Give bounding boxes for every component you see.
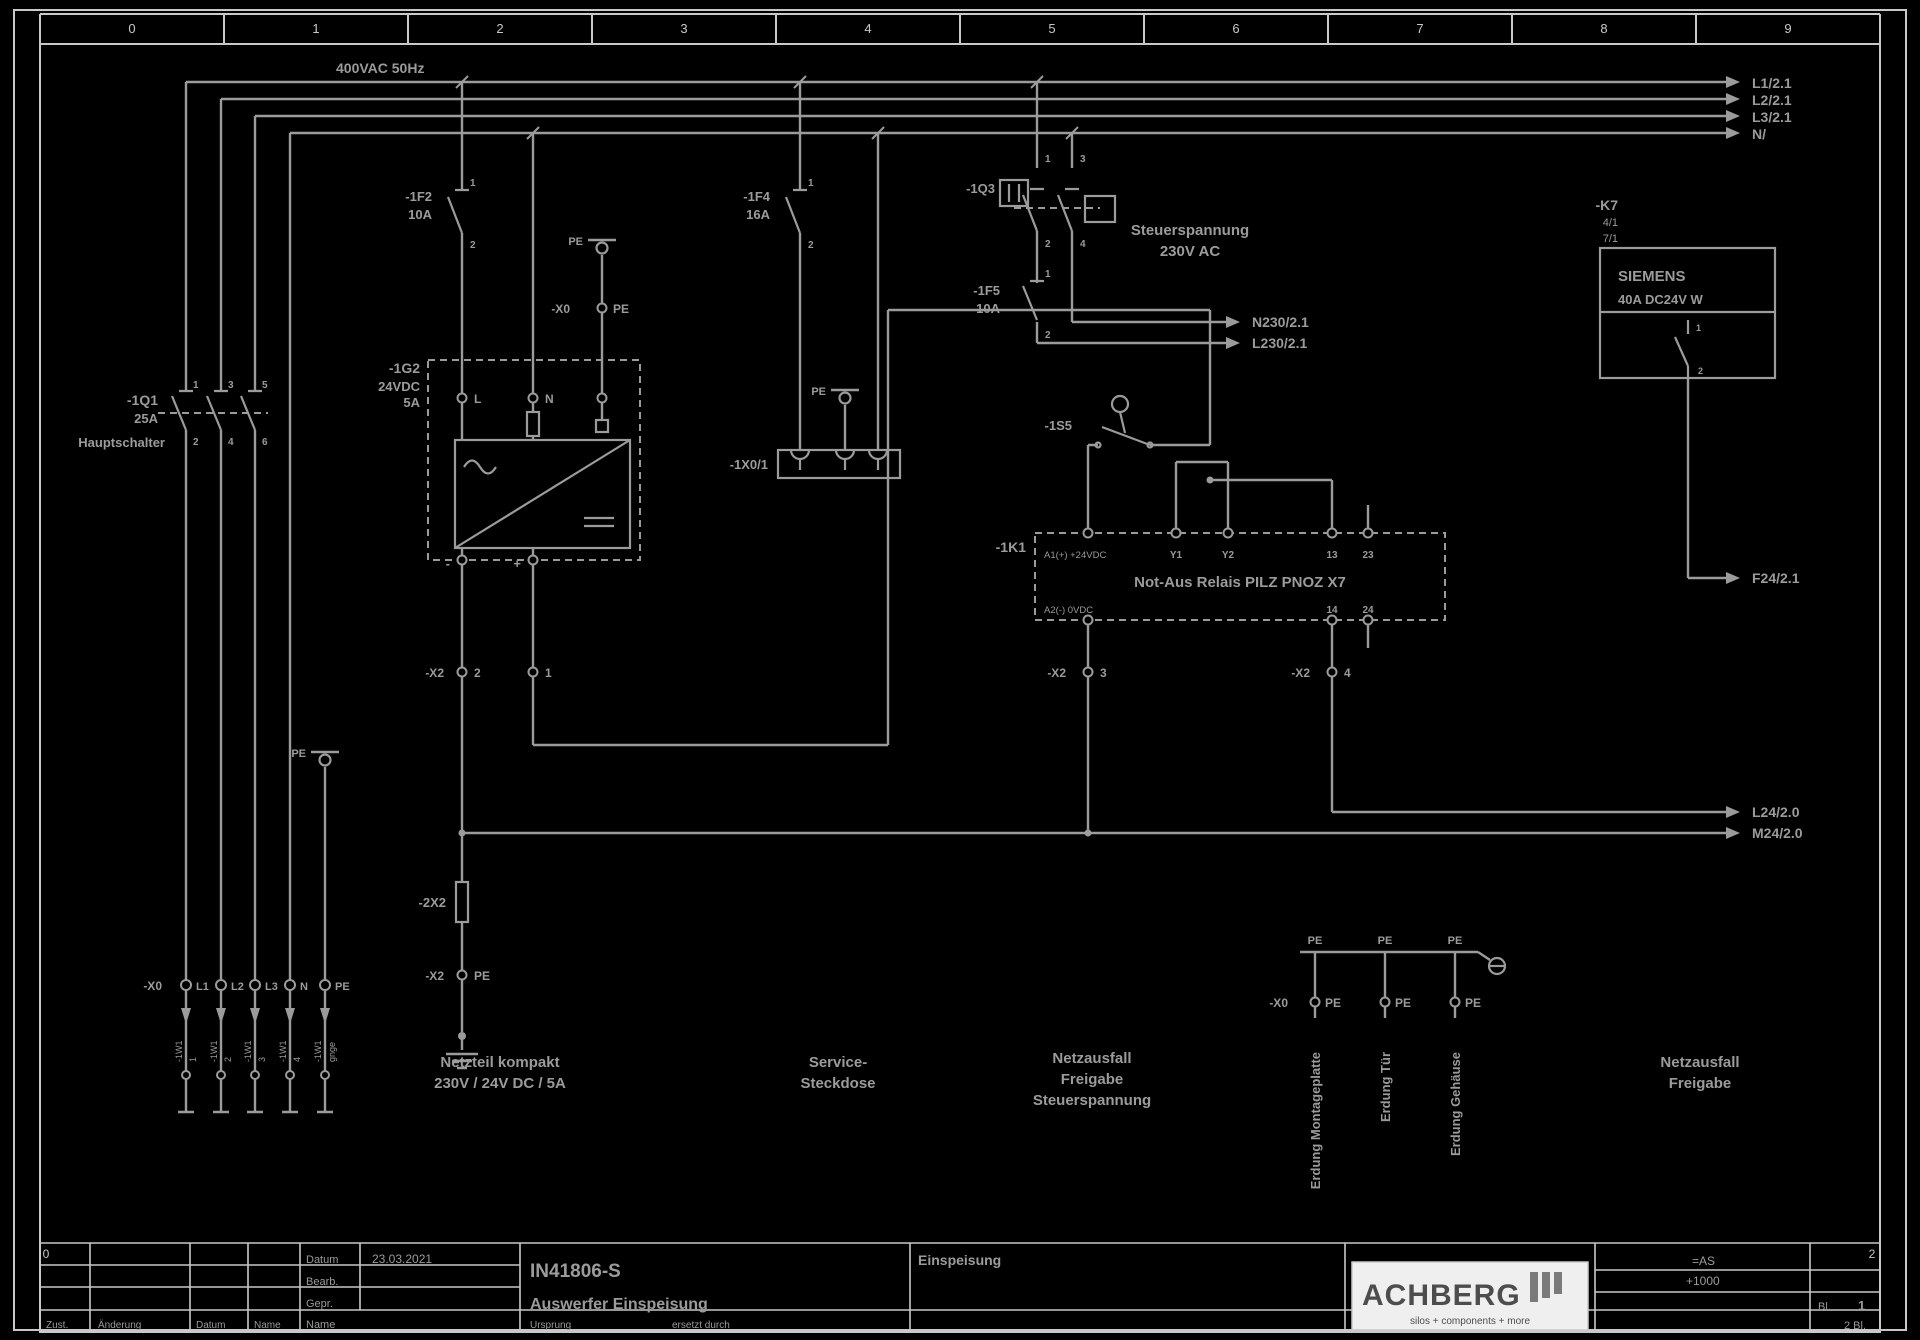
rpe-term-1: PE bbox=[1325, 996, 1341, 1010]
x0-term-pe: PE bbox=[335, 981, 350, 993]
phase-drops bbox=[186, 82, 325, 981]
x0-term-l3: L3 bbox=[265, 981, 278, 993]
tb-ort: +1000 bbox=[1686, 1274, 1720, 1288]
x0-tag: -X0 bbox=[143, 979, 162, 993]
schematic-canvas: ACHBERG silos + components + more bbox=[0, 0, 1920, 1340]
f2-rating: 10A bbox=[408, 207, 432, 222]
pe-label-g2: PE bbox=[568, 236, 583, 248]
tb-bearb-label: Bearb. bbox=[306, 1276, 338, 1288]
tb-zust-label: Zust. bbox=[46, 1320, 68, 1331]
ruler-bottom-right: 2 bbox=[1869, 1247, 1876, 1261]
acdc-converter-detail bbox=[455, 440, 630, 548]
plus24-run bbox=[533, 310, 1210, 745]
caption-psu-2: 230V / 24V DC / 5A bbox=[434, 1075, 566, 1092]
x2-tag-b: -X2 bbox=[1047, 666, 1066, 680]
socket-tag: -1X0/1 bbox=[730, 457, 768, 472]
pe-top-1: PE bbox=[1308, 935, 1323, 947]
rail-tap-marks bbox=[456, 76, 1078, 139]
pe-source-ticks bbox=[311, 240, 859, 752]
tb-datum-label: Datum bbox=[306, 1254, 338, 1266]
k1-y1: Y1 bbox=[1170, 550, 1183, 561]
x2-tag-a: -X2 bbox=[425, 666, 444, 680]
x0pe-tag: -X0 bbox=[551, 302, 570, 316]
socket-contacts-icon bbox=[791, 450, 887, 470]
k7-tag: -K7 bbox=[1595, 197, 1618, 213]
k1-14: 14 bbox=[1326, 605, 1338, 616]
tb-sheet-title: Einspeisung bbox=[918, 1252, 1001, 1268]
x2-tag-c: -X2 bbox=[1291, 666, 1310, 680]
q3-t4: 4 bbox=[1080, 239, 1086, 250]
cable-core-4: 4 bbox=[292, 1057, 302, 1062]
psu-fuse-icon bbox=[527, 412, 539, 436]
cable-name-2: -1W1 bbox=[209, 1040, 219, 1062]
tb-blatt-label: Bl. bbox=[1818, 1301, 1831, 1313]
g2-term-l: L bbox=[474, 392, 481, 406]
ruler-col-2: 2 bbox=[496, 21, 503, 36]
ruler-col-9: 9 bbox=[1784, 21, 1791, 36]
k1-a2: A2(-) 0VDC bbox=[1044, 605, 1093, 616]
main-switch-icon bbox=[172, 391, 262, 430]
tb-ersetzt: ersetzt durch bbox=[672, 1320, 730, 1331]
q1-rating: 25A bbox=[134, 411, 158, 426]
k1-13: 13 bbox=[1326, 550, 1338, 561]
pe-label-left: PE bbox=[291, 748, 306, 760]
ruler-col-4: 4 bbox=[864, 21, 871, 36]
ruler-col-7: 7 bbox=[1416, 21, 1423, 36]
q1-function: Hauptschalter bbox=[78, 435, 165, 450]
q3-t3: 3 bbox=[1080, 154, 1086, 165]
s5-tag: -1S5 bbox=[1045, 418, 1072, 433]
tb-datum2-label: Datum bbox=[196, 1320, 225, 1331]
x2x-link-icon bbox=[456, 882, 468, 922]
rpe-x0-tag: -X0 bbox=[1269, 996, 1288, 1010]
x0-term-n: N bbox=[300, 981, 308, 993]
ruler-col-6: 6 bbox=[1232, 21, 1239, 36]
junction-dot bbox=[1085, 830, 1092, 837]
schematic-page: ACHBERG silos + components + more bbox=[0, 0, 1920, 1340]
k7-rating: 40A DC24V W bbox=[1618, 292, 1703, 307]
wire-ref-l1: L1/2.1 bbox=[1752, 75, 1792, 91]
wire-ref-l24: L24/2.0 bbox=[1752, 804, 1800, 820]
q3-t1: 1 bbox=[1045, 154, 1051, 165]
cable-name-5: -1W1 bbox=[313, 1040, 323, 1062]
tb-blatt-total: 2 Bl. bbox=[1844, 1320, 1866, 1332]
q3-tag: -1Q3 bbox=[966, 181, 995, 196]
caption-earth-2: Erdung Tür bbox=[1378, 1052, 1393, 1122]
caption-earth-3: Erdung Gehäuse bbox=[1448, 1052, 1463, 1156]
label-layer: 012345678902400VAC 50HzL1/2.1L2/2.1L3/2.… bbox=[43, 21, 1876, 1332]
outer-border bbox=[14, 10, 1906, 1330]
f4-tag: -1F4 bbox=[743, 189, 771, 204]
ruler-col-1: 1 bbox=[312, 21, 319, 36]
reset-switch-icon bbox=[1102, 412, 1150, 445]
relay-reset-jumper bbox=[1176, 462, 1228, 529]
q3-t2: 2 bbox=[1045, 239, 1051, 250]
caption-k7-1: Netzausfall bbox=[1660, 1054, 1739, 1071]
cable-core-2: 2 bbox=[223, 1057, 233, 1062]
breaker-f2-icon bbox=[448, 190, 469, 233]
k1-24: 24 bbox=[1362, 605, 1374, 616]
f4-t1: 1 bbox=[808, 178, 814, 189]
k7-ref2: 7/1 bbox=[1603, 233, 1618, 245]
k7-t1: 1 bbox=[1696, 323, 1701, 333]
x2pe-tag: -X2 bbox=[425, 969, 444, 983]
pe-source-left bbox=[320, 755, 331, 766]
k1-a1: A1(+) +24VDC bbox=[1044, 550, 1106, 561]
tb-name-label: Name bbox=[306, 1319, 335, 1331]
g2-rating2: 5A bbox=[403, 395, 420, 410]
psu-pe-block bbox=[596, 420, 608, 432]
k7-brand: SIEMENS bbox=[1618, 268, 1686, 285]
k7-ref1: 4/1 bbox=[1603, 217, 1618, 229]
caption-relay-2: Freigabe bbox=[1061, 1071, 1124, 1088]
caption-k7-2: Freigabe bbox=[1669, 1075, 1732, 1092]
wire-exit-arrows bbox=[1226, 76, 1740, 839]
socket-outline bbox=[778, 450, 900, 478]
q1-t3: 3 bbox=[228, 380, 234, 391]
cable-core-5: gnge bbox=[327, 1042, 337, 1062]
tb-anlage: =AS bbox=[1692, 1254, 1715, 1268]
pe-source-g2 bbox=[597, 243, 608, 254]
dashed-outlines bbox=[158, 208, 1445, 620]
k7-wiring bbox=[1688, 378, 1726, 578]
g2-out-plus: + bbox=[513, 556, 521, 571]
tb-project-no: IN41806-S bbox=[530, 1261, 621, 1282]
terminals bbox=[181, 304, 1460, 1080]
g2-out-minus: - bbox=[446, 556, 450, 571]
g2-term-n: N bbox=[545, 392, 554, 406]
reset-switch-actuator bbox=[1112, 396, 1128, 412]
caption-relay-1: Netzausfall bbox=[1052, 1050, 1131, 1067]
f5-tag: -1F5 bbox=[973, 283, 1000, 298]
wire-ref-l3: L3/2.1 bbox=[1752, 109, 1792, 125]
logo-wordmark: ACHBERG bbox=[1362, 1279, 1521, 1312]
pe-top-3: PE bbox=[1448, 935, 1463, 947]
x2pe-term: PE bbox=[474, 969, 490, 983]
f5-rating: 10A bbox=[976, 301, 1000, 316]
tb-name2-label: Name bbox=[254, 1320, 281, 1331]
caption-socket-1: Service- bbox=[809, 1054, 867, 1071]
company-logo: ACHBERG silos + components + more bbox=[1352, 1262, 1588, 1330]
tb-blatt-no: 1 bbox=[1858, 1298, 1865, 1313]
caption-earth-1: Erdung Montageplatte bbox=[1308, 1052, 1323, 1189]
pe-top-2: PE bbox=[1378, 935, 1393, 947]
g2-outputs bbox=[462, 548, 533, 668]
logo-tagline: silos + components + more bbox=[1410, 1316, 1530, 1327]
x0-term-l2: L2 bbox=[231, 981, 244, 993]
caption-relay-3: Steuerspannung bbox=[1033, 1092, 1151, 1109]
cable-core-1: 1 bbox=[188, 1057, 198, 1062]
ruler-col-5: 5 bbox=[1048, 21, 1055, 36]
f2-t2: 2 bbox=[470, 240, 476, 251]
caption-socket-2: Steckdose bbox=[800, 1075, 875, 1092]
f5-t2: 2 bbox=[1045, 330, 1051, 341]
q1-t5: 5 bbox=[262, 380, 268, 391]
x2-term-4: 4 bbox=[1344, 666, 1351, 680]
g2-tag: -1G2 bbox=[389, 360, 420, 376]
f4-t2: 2 bbox=[808, 240, 814, 251]
cable-core-3: 3 bbox=[257, 1057, 267, 1062]
caption-psu-1: Netzteil kompakt bbox=[440, 1054, 559, 1071]
k7-contact-icon bbox=[1675, 320, 1688, 378]
cable-name-4: -1W1 bbox=[278, 1040, 288, 1062]
control-voltage-1: Steuerspannung bbox=[1131, 222, 1249, 239]
k7-t2: 2 bbox=[1698, 366, 1703, 376]
cable-name-1: -1W1 bbox=[174, 1040, 184, 1062]
relay-contact-wiring bbox=[1210, 480, 1726, 812]
mains-note: 400VAC 50Hz bbox=[336, 60, 424, 76]
breaker-f5-icon bbox=[1023, 281, 1044, 320]
g2-rating1: 24VDC bbox=[378, 379, 421, 394]
sheet-frame bbox=[14, 10, 1906, 1332]
x2-term-1: 1 bbox=[545, 666, 552, 680]
k1-title: Not-Aus Relais PILZ PNOZ X7 bbox=[1134, 574, 1346, 591]
pe-label-socket: PE bbox=[811, 386, 826, 398]
ruler-col-8: 8 bbox=[1600, 21, 1607, 36]
x0-term-l1: L1 bbox=[196, 981, 209, 993]
f2-tag: -1F2 bbox=[405, 189, 432, 204]
q3-test-element bbox=[1000, 180, 1028, 206]
wire-ref-n: N/ bbox=[1752, 126, 1766, 142]
wire-ref-l2: L2/2.1 bbox=[1752, 92, 1792, 108]
ruler-bottom-left: 0 bbox=[43, 1247, 50, 1261]
q1-t4: 4 bbox=[228, 437, 234, 448]
wire-ref-n230: N230/2.1 bbox=[1252, 314, 1309, 330]
junction-dot bbox=[459, 830, 466, 837]
tb-description: Auswerfer Einspeisung bbox=[530, 1296, 708, 1313]
tb-aenderung-label: Änderung bbox=[98, 1319, 141, 1331]
q1-tag: -1Q1 bbox=[127, 392, 158, 408]
tb-datum-value: 23.03.2021 bbox=[372, 1252, 432, 1266]
power-rails bbox=[186, 82, 1726, 133]
rpe-term-2: PE bbox=[1395, 996, 1411, 1010]
wire-ref-l230: L230/2.1 bbox=[1252, 335, 1307, 351]
f2-t1: 1 bbox=[470, 178, 476, 189]
breaker-f4-icon bbox=[786, 190, 807, 233]
wire-ref-m24: M24/2.0 bbox=[1752, 825, 1803, 841]
pe-source-socket bbox=[840, 393, 851, 404]
rpe-term-3: PE bbox=[1465, 996, 1481, 1010]
junction-dot bbox=[1207, 477, 1214, 484]
x2x-tag: -2X2 bbox=[419, 895, 446, 910]
q1-t2: 2 bbox=[193, 437, 199, 448]
zero-volt-run bbox=[462, 677, 1726, 1032]
k1-23: 23 bbox=[1362, 550, 1374, 561]
x0pe-term: PE bbox=[613, 302, 629, 316]
component-symbols bbox=[172, 180, 1775, 974]
tb-gepr-label: Gepr. bbox=[306, 1298, 333, 1310]
q1-t1: 1 bbox=[193, 380, 199, 391]
cable-down-arrows bbox=[181, 1008, 330, 1024]
k1-y2: Y2 bbox=[1222, 550, 1235, 561]
k1-tag: -1K1 bbox=[996, 539, 1027, 555]
earth-dot bbox=[458, 1032, 466, 1040]
q1-t6: 6 bbox=[262, 437, 268, 448]
f5-t1: 1 bbox=[1045, 269, 1051, 280]
cable-name-3: -1W1 bbox=[243, 1040, 253, 1062]
breaker-q3-icon bbox=[1023, 189, 1079, 231]
tb-ursprung: Ursprung bbox=[530, 1320, 571, 1331]
ruler-col-3: 3 bbox=[680, 21, 687, 36]
wire-ref-f24: F24/2.1 bbox=[1752, 570, 1800, 586]
q3-test-element-bars bbox=[1009, 184, 1019, 202]
f4-rating: 16A bbox=[746, 207, 770, 222]
control-voltage-2: 230V AC bbox=[1160, 243, 1220, 260]
x2-term-3: 3 bbox=[1100, 666, 1107, 680]
x2-term-2: 2 bbox=[474, 666, 481, 680]
ruler-col-0: 0 bbox=[128, 21, 135, 36]
